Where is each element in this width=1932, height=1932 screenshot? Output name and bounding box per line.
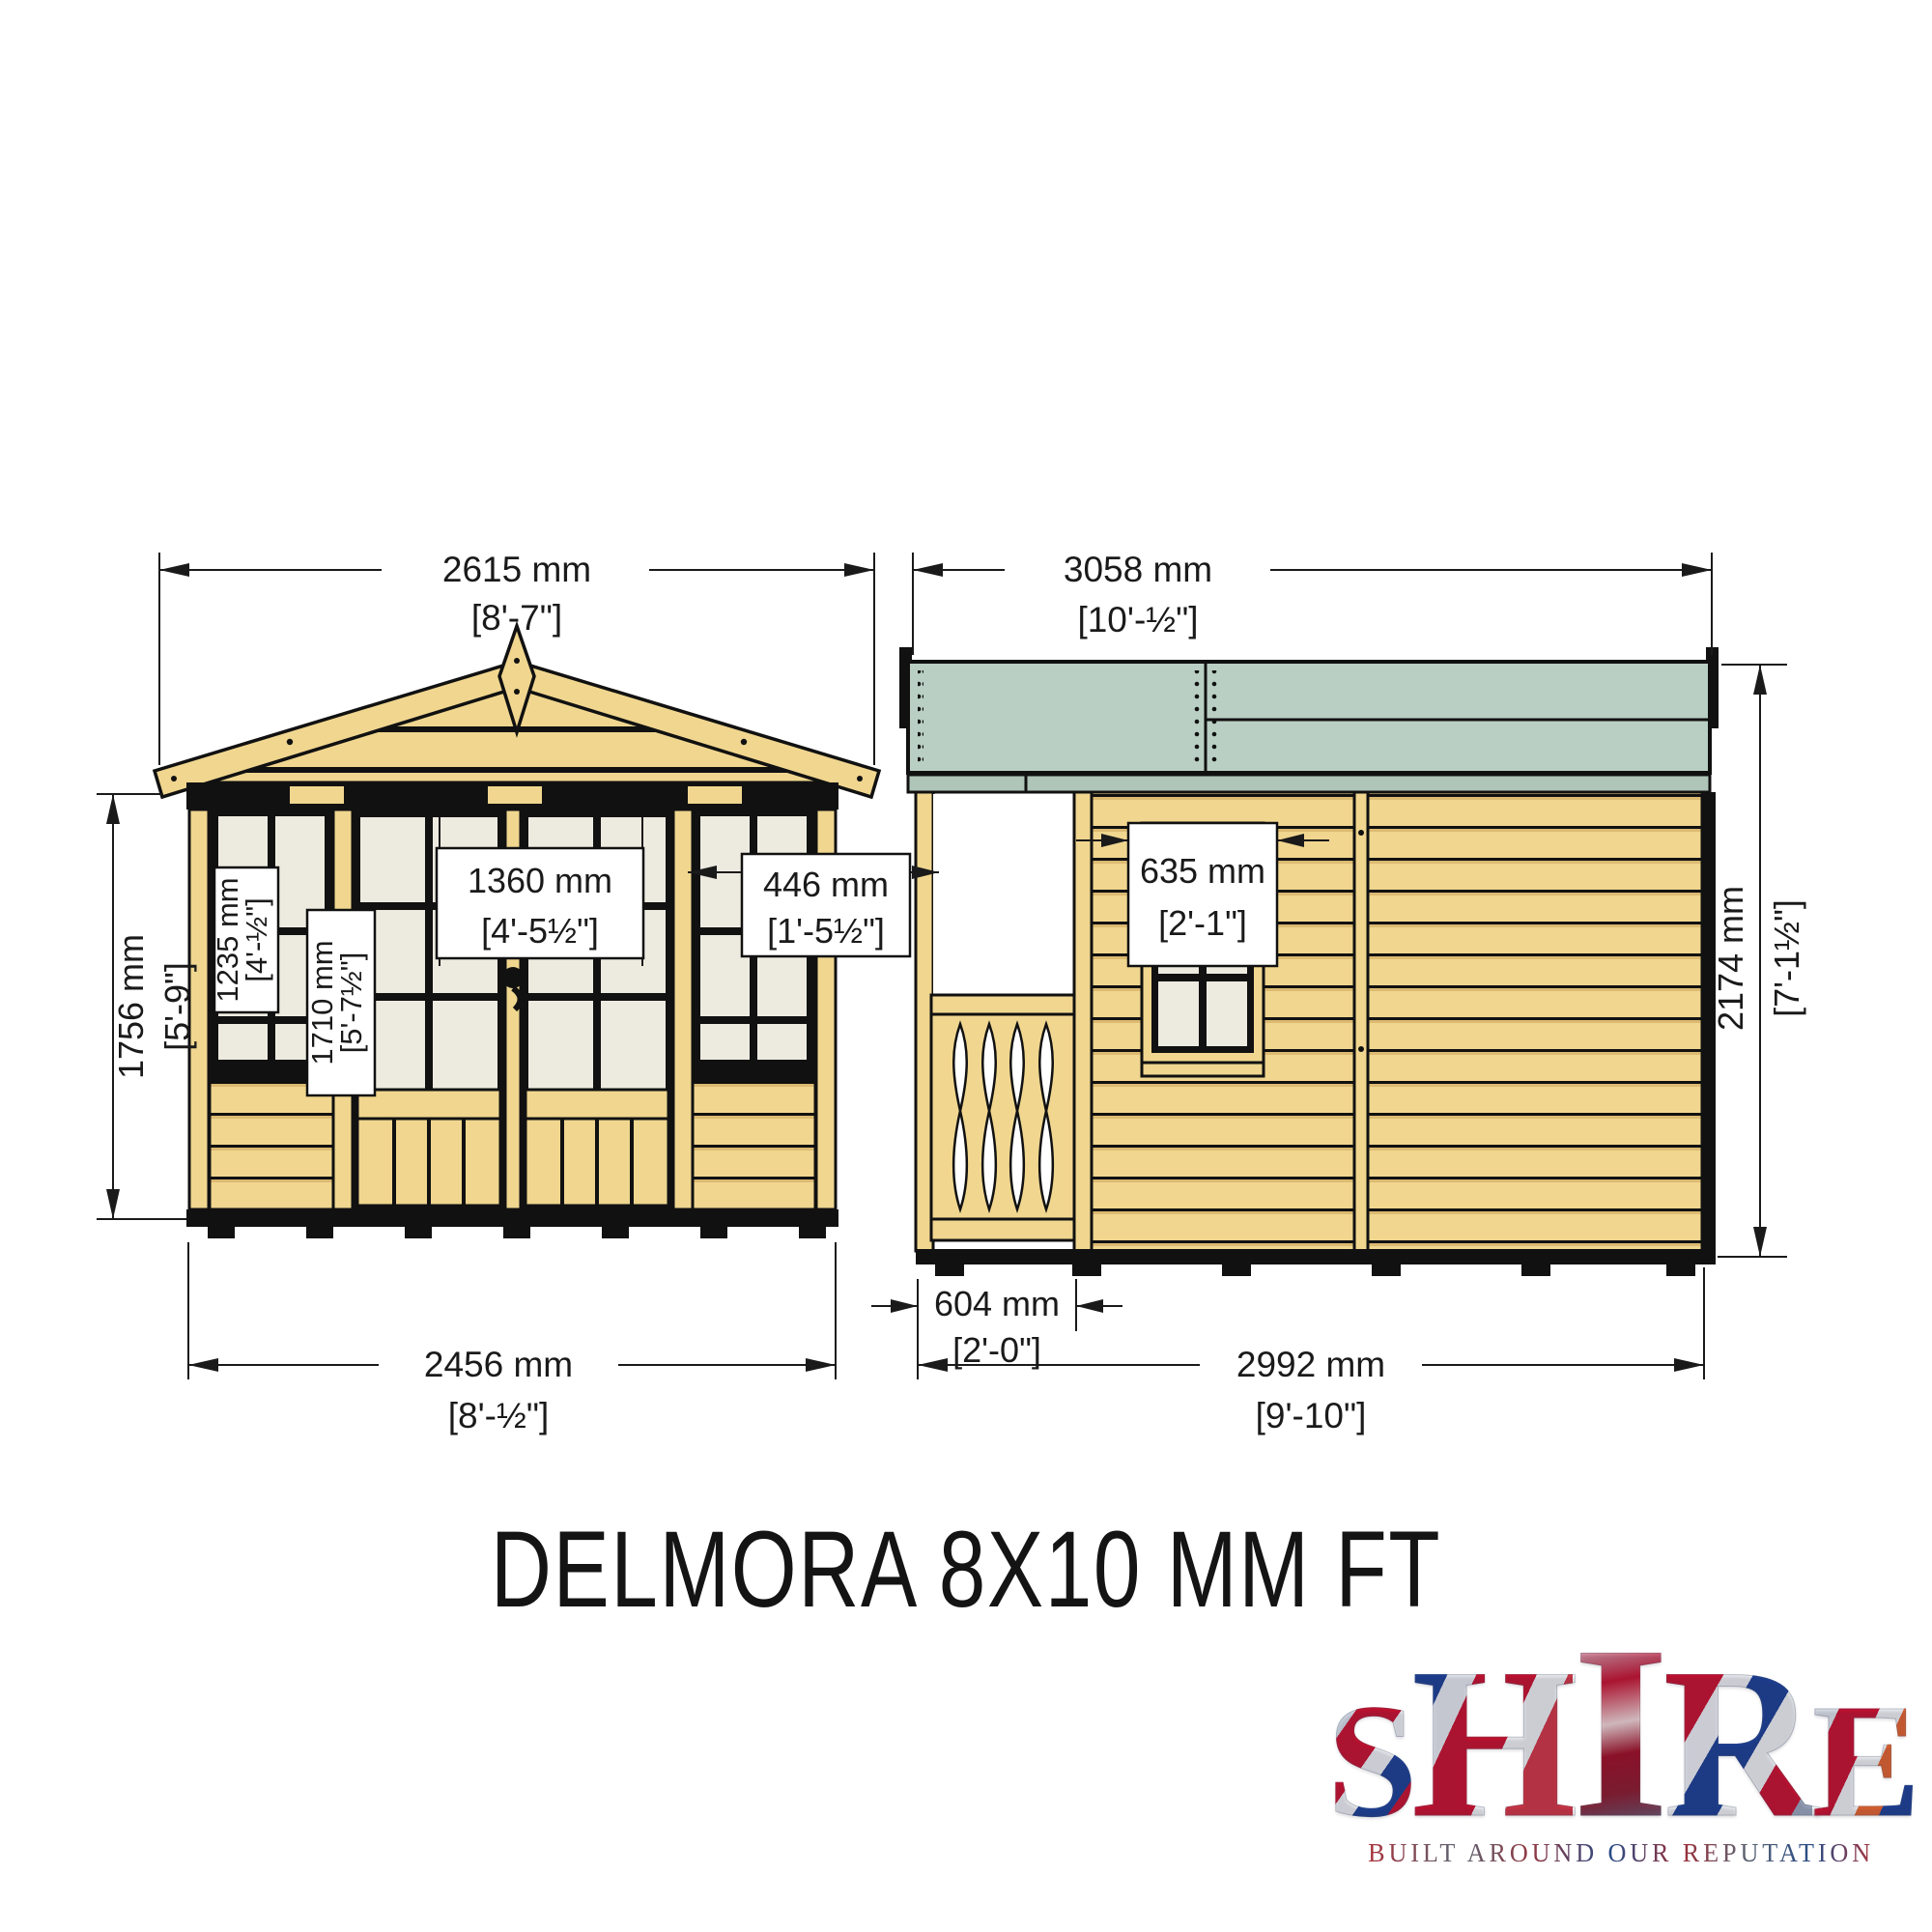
side-elevation (899, 647, 1719, 1276)
dim-roof-length: 3058 mm [10'-½"] (913, 550, 1712, 655)
door-frame-right-post (673, 810, 693, 1209)
dim-text: 2174 mm (1711, 886, 1750, 1031)
dim-text: [10'-½"] (1077, 600, 1198, 639)
nail-dot-icon (287, 739, 293, 745)
wall-batten (1354, 792, 1368, 1251)
dim-text: [2'-0"] (952, 1330, 1041, 1370)
side-base (916, 1249, 1716, 1276)
dim-text: [1'-5½"] (767, 911, 885, 951)
elevation-drawing: 2615 mm [8'-7"] 1756 mm [5'-9"] 1235 mm … (0, 0, 1932, 1488)
shire-logo-letters: SHIRE (1360, 1634, 1882, 1833)
dim-text: [4'-½"] (240, 897, 273, 982)
dim-text: 2615 mm (442, 550, 591, 589)
logo-letter-h: H (1411, 1659, 1573, 1831)
dim-door-height: 1710 mm [5'-7½"] (305, 910, 375, 1095)
front-eaves-band (186, 782, 838, 810)
page-title: DELMORA 8X10 MM FT (491, 1507, 1441, 1632)
dim-text: 3058 mm (1064, 550, 1212, 589)
side-roof (899, 647, 1719, 792)
front-left-cladding (210, 1080, 333, 1209)
dim-base-width: 2456 mm [8'-½"] (188, 1242, 836, 1435)
logo-letter-s: S (1327, 1696, 1411, 1826)
front-base (186, 1209, 838, 1238)
logo-letter-r: R (1663, 1659, 1812, 1831)
shire-logo: SHIRE BUILT AROUND OUR REPUTATION (1360, 1634, 1882, 1868)
dim-text: [7'-1½"] (1767, 899, 1806, 1017)
roof-fascia (908, 775, 1710, 792)
dim-text: [9'-10"] (1256, 1396, 1367, 1435)
porch-balustrade (931, 995, 1074, 1240)
front-right-cladding (692, 1080, 815, 1209)
drawing-sheet: 2615 mm [8'-7"] 1756 mm [5'-9"] 1235 mm … (0, 0, 1932, 1932)
dim-text: 446 mm (763, 865, 889, 904)
dim-text: 1756 mm (111, 934, 151, 1079)
logo-letter-e: E (1812, 1696, 1915, 1826)
dim-text: [5'-7½"] (334, 952, 368, 1054)
dim-text: 635 mm (1140, 851, 1265, 891)
dim-text: [4'-5½"] (481, 911, 599, 951)
nail-dot-icon (857, 776, 863, 781)
dim-text: 2992 mm (1236, 1345, 1385, 1384)
dim-side-height: 2174 mm [7'-1½"] (1711, 665, 1806, 1257)
nail-dot-icon (741, 739, 747, 745)
dim-text: [8'-½"] (448, 1396, 550, 1435)
door-handle-icon (502, 967, 524, 988)
logo-tagline: BUILT AROUND OUR REPUTATION (1368, 1838, 1874, 1868)
dim-text: 604 mm (934, 1284, 1060, 1323)
nail-dot-icon (1358, 830, 1364, 836)
nail-dot-icon (171, 776, 177, 781)
dim-text: [8'-7"] (471, 598, 562, 638)
dim-text: 2456 mm (424, 1345, 573, 1384)
side-corner-trim (1074, 792, 1092, 1251)
dim-window-height: 1235 mm [4'-½"] (211, 867, 278, 1012)
nail-dot-icon (1358, 1046, 1364, 1052)
dim-front-height: 1756 mm [5'-9"] (97, 794, 197, 1219)
dim-text: [2'-1"] (1158, 903, 1247, 943)
porch-opening (933, 794, 1074, 995)
logo-letter-i: I (1573, 1634, 1663, 1833)
dim-text: 1360 mm (468, 861, 612, 900)
dim-text: [5'-9"] (157, 962, 197, 1051)
